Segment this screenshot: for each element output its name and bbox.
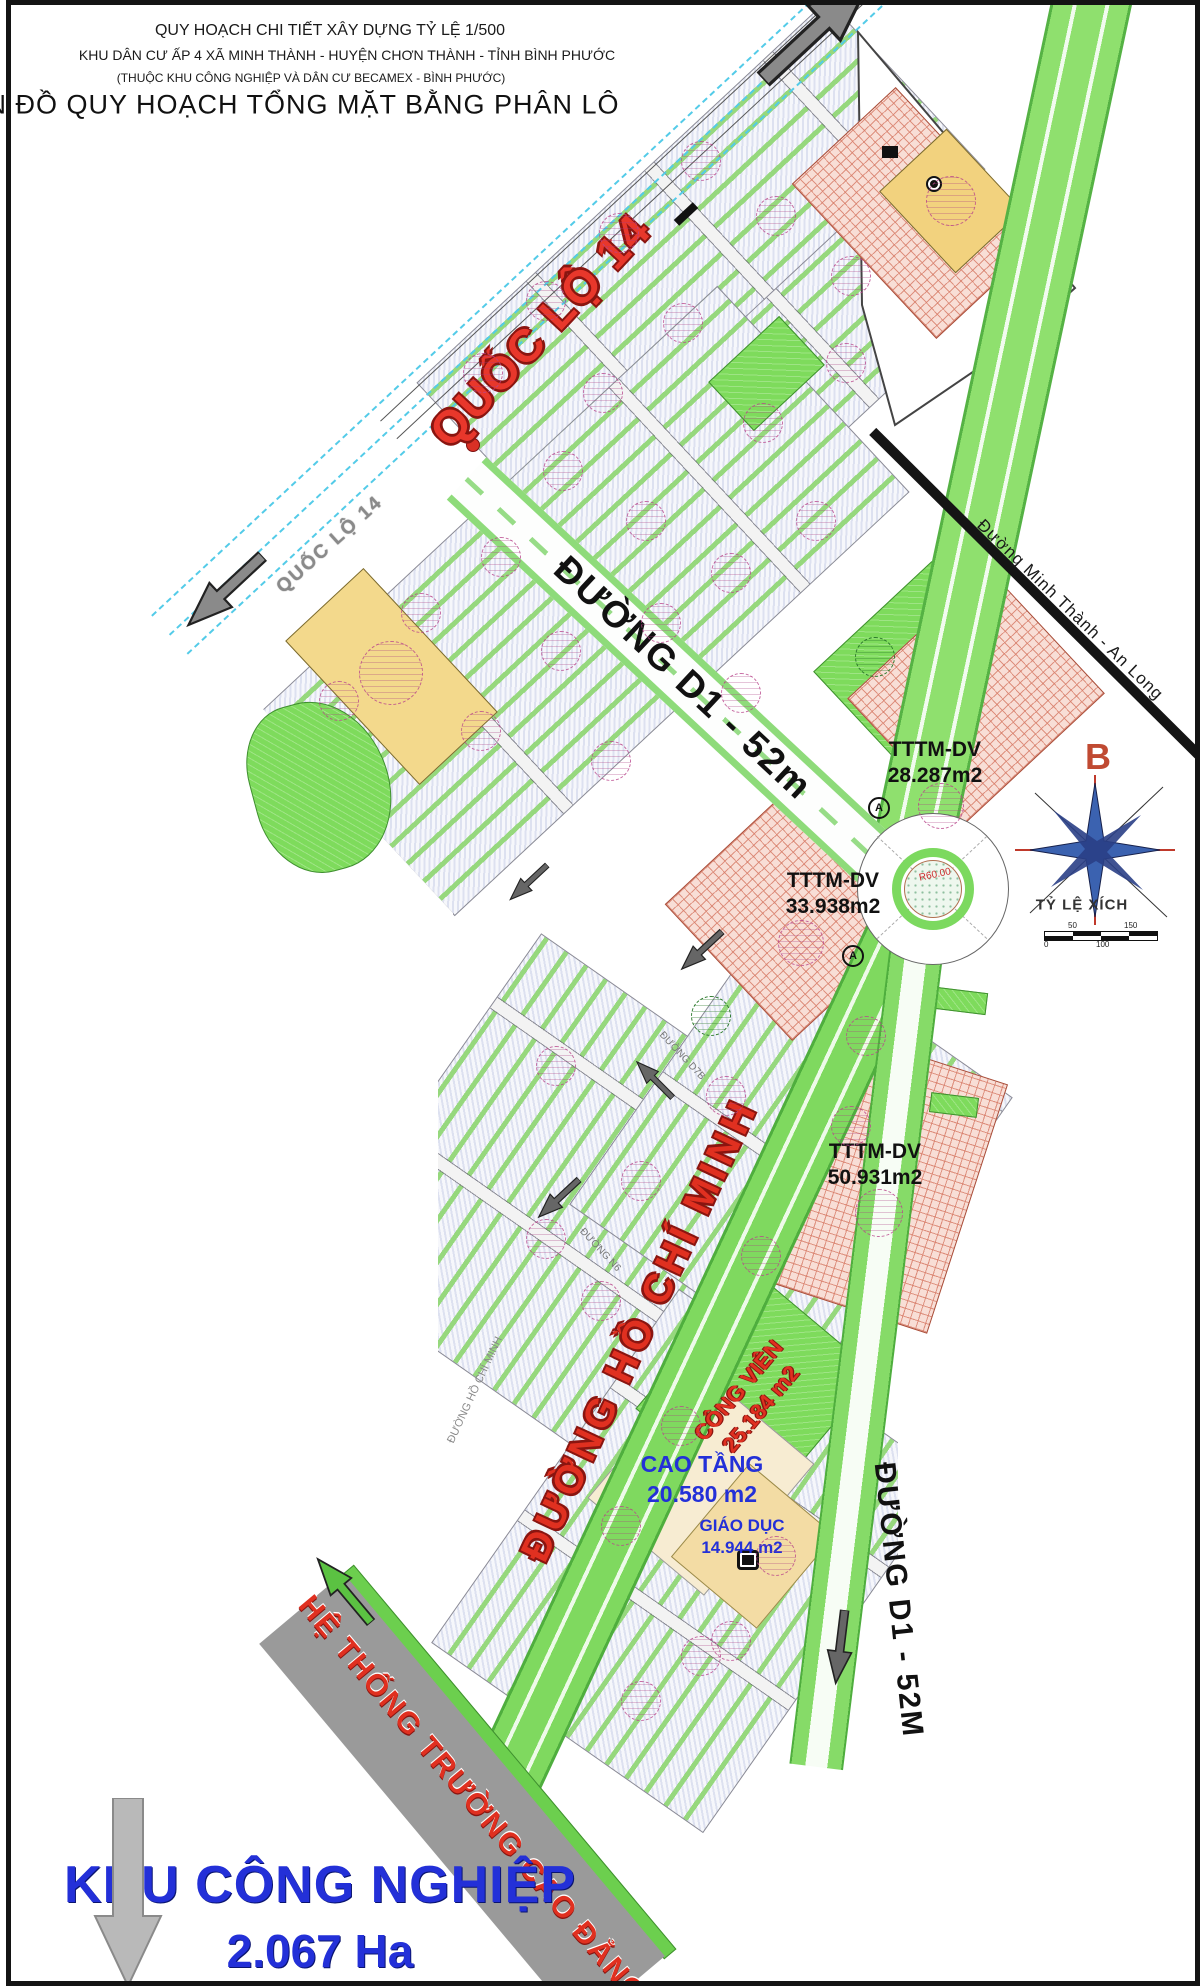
parcel-label-tttm-33938: TTTM-DV 33.938m2 xyxy=(786,868,881,921)
lot-label-circle xyxy=(641,603,681,643)
lot-label-circle-green xyxy=(855,637,895,677)
marker-circled-a: A xyxy=(842,945,864,967)
lot-label-circle xyxy=(855,1189,903,1237)
white-mask xyxy=(238,1020,438,1520)
lot-label-circle xyxy=(743,403,783,443)
tttm2-area: 33.938m2 xyxy=(786,894,881,920)
lot-label-circle xyxy=(543,451,583,491)
lot-label-circle xyxy=(626,501,666,541)
lot-label-circle xyxy=(756,1536,796,1576)
tttm1-name: TTTM-DV xyxy=(888,737,983,763)
lot-label-circle xyxy=(681,141,721,181)
lot-label-circle xyxy=(661,1406,701,1446)
lot-label-circle xyxy=(481,537,521,577)
lot-label-circle xyxy=(711,1621,751,1661)
giao-duc-name: GIÁO DỤC xyxy=(700,1515,785,1537)
scale-tick: 100 xyxy=(1096,940,1109,949)
lot-label-circle-green xyxy=(691,996,731,1036)
lot-label-circle xyxy=(581,1281,621,1321)
industrial-area-label: 2.067 Ha xyxy=(227,1924,414,1978)
lot-label-circle xyxy=(796,501,836,541)
tttm3-area: 50.931m2 xyxy=(828,1165,923,1191)
lot-label-circle xyxy=(401,593,441,633)
lot-label-circle xyxy=(461,711,501,751)
lot-label-circle xyxy=(846,1016,886,1056)
lot-label-circle xyxy=(741,1236,781,1276)
cao-tang-area: 20.580 m2 xyxy=(641,1480,764,1510)
lot-label-circle xyxy=(359,641,423,705)
scale-tick: 150 xyxy=(1124,921,1137,930)
title-line-1: QUY HOẠCH CHI TIẾT XÂY DỰNG TỶ LỆ 1/500 xyxy=(155,22,505,40)
lot-label-circle xyxy=(721,673,761,713)
lot-label-circle xyxy=(601,1506,641,1546)
lot-label-circle xyxy=(711,553,751,593)
lot-label-circle xyxy=(319,681,359,721)
lot-label-circle xyxy=(591,741,631,781)
lot-label-circle xyxy=(926,176,976,226)
marker-circled-a: A xyxy=(868,797,890,819)
lot-label-circle xyxy=(831,256,871,296)
compass-north-label: B xyxy=(1085,736,1111,778)
site-plan-map: A A QUY HOẠCH CHI TIẾT XÂY DỰNG TỶ LỆ 1/… xyxy=(0,0,1200,1986)
scale-tick: 50 xyxy=(1068,921,1077,930)
parcel-label-tttm-50931: TTTM-DV 50.931m2 xyxy=(828,1139,923,1192)
parcel-label-cao-tang: CAO TẦNG 20.580 m2 xyxy=(641,1450,764,1510)
title-line-2: KHU DÂN CƯ ẤP 4 XÃ MINH THÀNH - HUYỆN CH… xyxy=(79,47,615,63)
lot-label-circle xyxy=(663,303,703,343)
lot-label-circle xyxy=(826,343,866,383)
parcel-green-small-1 xyxy=(934,987,988,1015)
tttm2-name: TTTM-DV xyxy=(786,868,881,894)
lot-label-circle xyxy=(706,1076,746,1116)
south-arrow-icon xyxy=(93,1798,163,1986)
lot-label-circle xyxy=(526,281,566,321)
lot-label-circle xyxy=(778,920,824,966)
lot-label-circle xyxy=(583,373,623,413)
lot-label-circle xyxy=(621,1681,661,1721)
cao-tang-name: CAO TẦNG xyxy=(641,1450,764,1480)
scale-tick: 0 xyxy=(1044,940,1048,949)
lot-label-circle xyxy=(831,1106,871,1146)
scale-label: TỶ LỆ XÍCH xyxy=(1036,897,1129,914)
marker-black-square xyxy=(882,146,898,158)
title-line-4: BẢN ĐỒ QUY HOẠCH TỔNG MẶT BẰNG PHÂN LÔ xyxy=(0,90,620,121)
lot-label-circle xyxy=(621,1161,661,1201)
parcel-label-tttm-28287: TTTM-DV 28.287m2 xyxy=(888,737,983,790)
lot-label-circle xyxy=(541,631,581,671)
lot-label-circle xyxy=(463,353,503,393)
lot-label-circle xyxy=(536,1046,576,1086)
lot-label-circle xyxy=(599,213,639,253)
lot-label-circle xyxy=(918,783,964,829)
lot-label-circle xyxy=(756,196,796,236)
scale-bar: 50 150 0 100 xyxy=(1044,921,1156,947)
title-line-3: (THUỘC KHU CÔNG NGHIỆP VÀ DÂN CƯ BECAMEX… xyxy=(117,71,506,85)
